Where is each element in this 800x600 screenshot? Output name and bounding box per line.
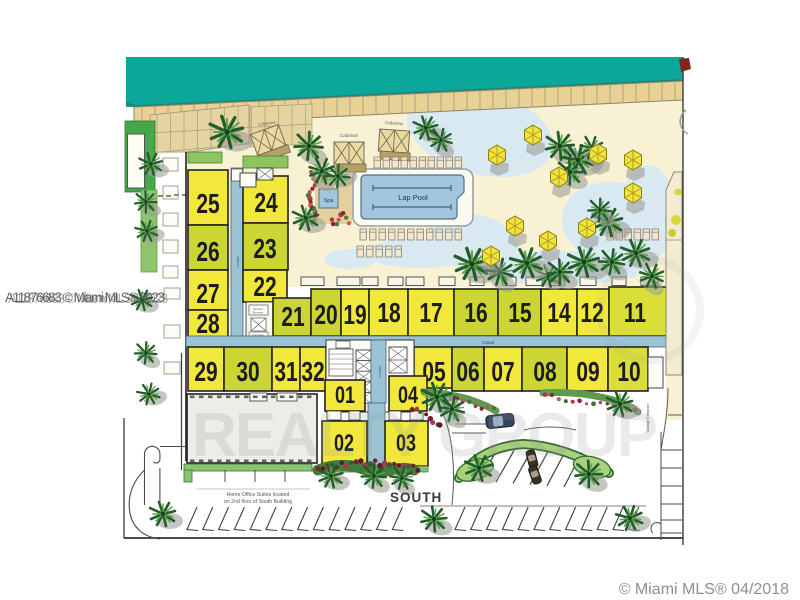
svg-text:19: 19 xyxy=(343,300,366,331)
svg-text:15: 15 xyxy=(508,298,532,329)
svg-text:18: 18 xyxy=(377,298,400,329)
svg-text:Home Office Suites located: Home Office Suites located xyxy=(227,492,290,498)
svg-text:30: 30 xyxy=(236,357,259,388)
svg-text:A11876683 © Miami MLS® 2023: A11876683 © Miami MLS® 2023 xyxy=(8,291,168,306)
svg-text:14: 14 xyxy=(547,298,571,329)
svg-text:08: 08 xyxy=(533,357,556,388)
svg-text:16: 16 xyxy=(464,298,487,329)
svg-text:26: 26 xyxy=(196,237,219,268)
svg-text:20: 20 xyxy=(314,300,337,331)
svg-text:06: 06 xyxy=(456,357,479,388)
svg-text:28: 28 xyxy=(196,309,219,340)
svg-text:07: 07 xyxy=(491,357,514,388)
svg-text:24: 24 xyxy=(254,188,278,219)
svg-text:on 2nd floor of South Building: on 2nd floor of South Building xyxy=(224,499,292,505)
svg-text:SOUTH: SOUTH xyxy=(390,490,442,505)
svg-text:31: 31 xyxy=(274,357,298,388)
svg-text:32: 32 xyxy=(301,357,324,388)
svg-text:corridor: corridor xyxy=(378,365,382,378)
svg-text:Elevator: Elevator xyxy=(252,311,263,315)
svg-text:17: 17 xyxy=(419,298,442,329)
svg-text:09: 09 xyxy=(576,357,599,388)
svg-text:23: 23 xyxy=(253,234,276,265)
svg-text:Canal: Canal xyxy=(482,340,494,345)
svg-text:29: 29 xyxy=(194,357,217,388)
svg-text:Cabanas: Cabanas xyxy=(340,133,359,138)
svg-text:REALTY GROUP: REALTY GROUP xyxy=(192,401,660,470)
svg-text:21: 21 xyxy=(281,302,305,333)
svg-text:© Miami MLS® 04/2018: © Miami MLS® 04/2018 xyxy=(619,581,789,598)
svg-text:11: 11 xyxy=(624,298,646,329)
svg-text:25: 25 xyxy=(196,189,220,220)
svg-text:Spa: Spa xyxy=(324,198,335,204)
svg-text:27: 27 xyxy=(196,279,219,310)
svg-text:Lap Pool: Lap Pool xyxy=(398,193,428,202)
svg-text:corridor: corridor xyxy=(236,255,240,268)
